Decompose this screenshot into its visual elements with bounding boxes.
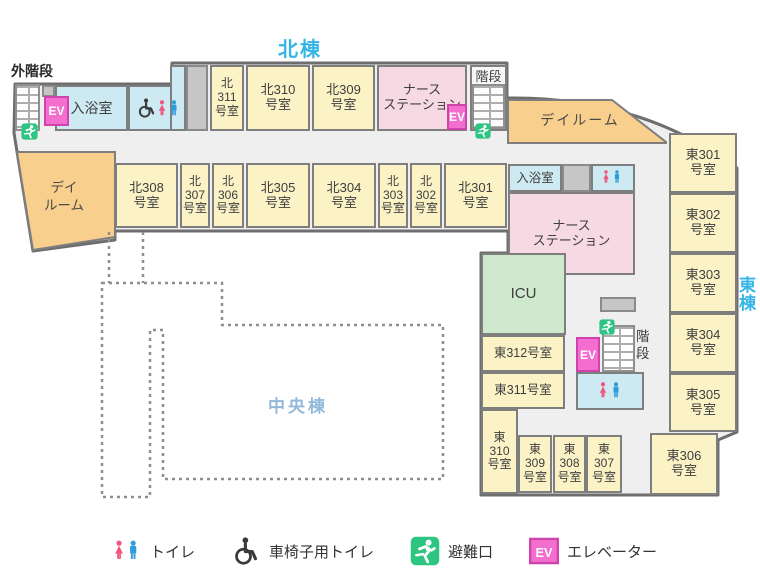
room-n301: 北301 号室 xyxy=(444,163,507,228)
room-icu: ICU xyxy=(481,253,566,335)
room-e303: 東303 号室 xyxy=(669,253,737,313)
gray-block-north xyxy=(186,65,208,131)
east-wing-title: 東 棟 xyxy=(739,277,756,313)
room-e309: 東 309 号室 xyxy=(518,435,552,493)
male-icon xyxy=(610,377,622,405)
exit-icon xyxy=(475,123,491,139)
legend-label: 避難口 xyxy=(448,541,493,562)
room-n310: 北310 号室 xyxy=(246,65,310,131)
toilet-pair-icon xyxy=(112,536,142,566)
legend-item-1: 車椅子用トイレ xyxy=(231,536,374,566)
svg-text:EV: EV xyxy=(536,546,553,560)
north-wing-title: 北棟 xyxy=(278,33,322,62)
ev-icon: EV xyxy=(529,536,559,566)
exit-icon xyxy=(599,319,615,335)
legend-label: エレベーター xyxy=(567,541,657,562)
room-bath-east: 入浴室 xyxy=(508,164,562,192)
exit-icon xyxy=(410,536,440,566)
gray-block-east-top xyxy=(562,164,591,192)
room-n311: 北 311 号室 xyxy=(210,65,244,131)
legend-item-0: トイレ xyxy=(112,536,195,566)
room-n302: 北 302 号室 xyxy=(410,163,442,228)
elevator-east: EV xyxy=(576,337,600,372)
room-n307: 北 307 号室 xyxy=(180,163,210,228)
room-n308: 北308 号室 xyxy=(115,163,178,228)
room-e312: 東312号室 xyxy=(481,335,565,372)
female-icon xyxy=(601,166,611,189)
legend-label: トイレ xyxy=(150,541,195,562)
dayroom-east-label: デイルーム xyxy=(530,110,630,130)
elevator-north: EV xyxy=(447,104,467,130)
room-e310: 東 310 号室 xyxy=(481,409,518,494)
room-n309: 北309 号室 xyxy=(312,65,375,131)
gray-block-east-mid xyxy=(600,297,636,312)
elevator-west: EV xyxy=(44,96,69,126)
room-e304: 東304 号室 xyxy=(669,313,737,373)
room-e301: 東301 号室 xyxy=(669,133,737,193)
room-n304: 北304 号室 xyxy=(312,163,376,228)
male-icon xyxy=(168,96,180,122)
room-e307: 東 307 号室 xyxy=(586,435,622,493)
legend-item-2: 避難口 xyxy=(410,536,493,566)
female-icon xyxy=(597,377,609,405)
room-e311: 東311号室 xyxy=(481,372,565,409)
female-icon xyxy=(156,96,168,122)
wheelchair-icon xyxy=(231,536,261,566)
room-e308: 東 308 号室 xyxy=(553,435,586,493)
room-n303: 北 303 号室 xyxy=(378,163,408,228)
room-e306: 東306 号室 xyxy=(650,433,718,495)
exit-icon xyxy=(21,123,38,140)
legend-label: 車椅子用トイレ xyxy=(269,541,374,562)
dayroom-west-label: デイ ルーム xyxy=(26,179,102,214)
central-wing-dashed-outline xyxy=(102,232,443,497)
stairs-north-label: 階段 xyxy=(470,66,507,85)
room-e302: 東302 号室 xyxy=(669,193,737,253)
floor-map: 入浴室北 311 号室北310 号室北309 号室ナース ステーション北308 … xyxy=(0,0,760,580)
room-n305: 北305 号室 xyxy=(246,163,310,228)
room-e305: 東305 号室 xyxy=(669,373,737,432)
central-wing-title: 中央棟 xyxy=(268,392,328,417)
legend-item-3: EVエレベーター xyxy=(529,536,657,566)
room-n306: 北 306 号室 xyxy=(212,163,244,228)
stairs-east-label: 階 段 xyxy=(636,329,650,363)
wheelchair-icon xyxy=(136,94,157,122)
outer-stairs-label: 外階段 xyxy=(11,61,53,81)
legend: トイレ車椅子用トイレ避難口EVエレベーター xyxy=(112,533,657,569)
male-icon xyxy=(612,166,622,189)
